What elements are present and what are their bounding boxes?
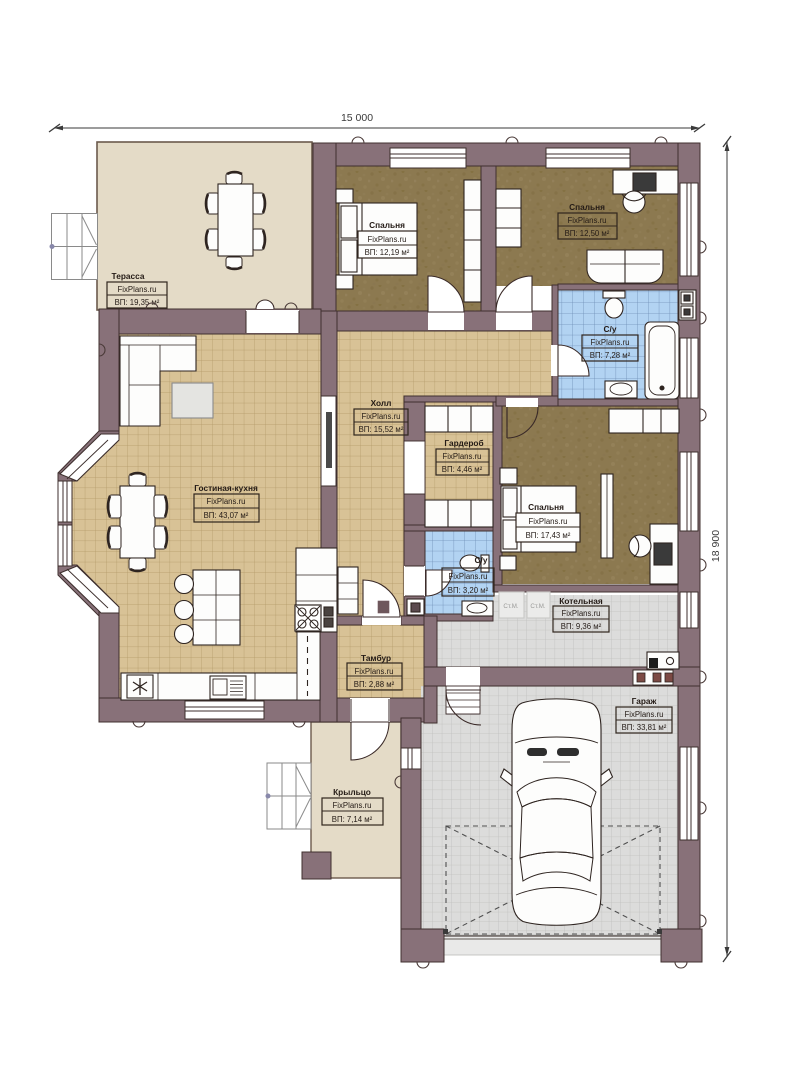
- svg-text:FixPlans.ru: FixPlans.ru: [591, 338, 630, 347]
- svg-text:ВП: 15,52 м²: ВП: 15,52 м²: [359, 425, 404, 434]
- svg-text:FixPlans.ru: FixPlans.ru: [368, 235, 407, 244]
- svg-text:ВП: 33,81 м²: ВП: 33,81 м²: [622, 723, 667, 732]
- svg-text:FixPlans.ru: FixPlans.ru: [562, 609, 601, 618]
- svg-text:FixPlans.ru: FixPlans.ru: [355, 667, 394, 676]
- svg-text:FixPlans.ru: FixPlans.ru: [625, 710, 664, 719]
- svg-text:ВП: 43,07 м²: ВП: 43,07 м²: [204, 511, 249, 520]
- svg-text:FixPlans.ru: FixPlans.ru: [568, 216, 607, 225]
- svg-text:ВП: 7,14 м²: ВП: 7,14 м²: [332, 815, 373, 824]
- svg-text:18 900: 18 900: [710, 530, 722, 562]
- svg-text:ВП: 19,35 м²: ВП: 19,35 м²: [115, 298, 160, 307]
- svg-text:FixPlans.ru: FixPlans.ru: [443, 452, 482, 461]
- svg-text:ВП: 7,28 м²: ВП: 7,28 м²: [590, 351, 631, 360]
- svg-text:ВП: 2,88 м²: ВП: 2,88 м²: [354, 680, 395, 689]
- svg-text:Холл: Холл: [371, 398, 392, 408]
- svg-text:Крыльцо: Крыльцо: [333, 787, 371, 797]
- svg-text:С/у: С/у: [475, 555, 488, 565]
- svg-text:ВП: 9,36 м²: ВП: 9,36 м²: [561, 622, 602, 631]
- svg-text:FixPlans.ru: FixPlans.ru: [118, 285, 157, 294]
- svg-text:Гардероб: Гардероб: [444, 438, 483, 448]
- svg-text:Ст.М.: Ст.М.: [530, 603, 545, 610]
- svg-text:Котельная: Котельная: [559, 596, 603, 606]
- svg-text:ВП: 12,19 м²: ВП: 12,19 м²: [365, 248, 410, 257]
- svg-text:Тамбур: Тамбур: [361, 653, 391, 663]
- svg-text:С/у: С/у: [604, 324, 617, 334]
- svg-text:ВП: 17,43 м²: ВП: 17,43 м²: [526, 531, 571, 540]
- svg-text:FixPlans.ru: FixPlans.ru: [529, 517, 568, 526]
- svg-text:Гостиная-кухня: Гостиная-кухня: [194, 483, 258, 493]
- svg-text:FixPlans.ru: FixPlans.ru: [449, 572, 488, 581]
- svg-text:Гараж: Гараж: [632, 696, 657, 706]
- svg-text:Терасса: Терасса: [112, 271, 145, 281]
- svg-text:FixPlans.ru: FixPlans.ru: [333, 801, 372, 810]
- svg-text:Спальня: Спальня: [569, 202, 605, 212]
- svg-text:Спальня: Спальня: [369, 220, 405, 230]
- svg-text:Ст.М.: Ст.М.: [503, 603, 518, 610]
- svg-text:15 000: 15 000: [341, 112, 373, 124]
- svg-text:Спальня: Спальня: [528, 502, 564, 512]
- svg-text:ВП: 12,50 м²: ВП: 12,50 м²: [565, 229, 610, 238]
- svg-text:ВП: 3,20 м²: ВП: 3,20 м²: [448, 586, 489, 595]
- svg-text:FixPlans.ru: FixPlans.ru: [362, 412, 401, 421]
- svg-text:FixPlans.ru: FixPlans.ru: [207, 497, 246, 506]
- svg-text:ВП: 4,46 м²: ВП: 4,46 м²: [442, 465, 483, 474]
